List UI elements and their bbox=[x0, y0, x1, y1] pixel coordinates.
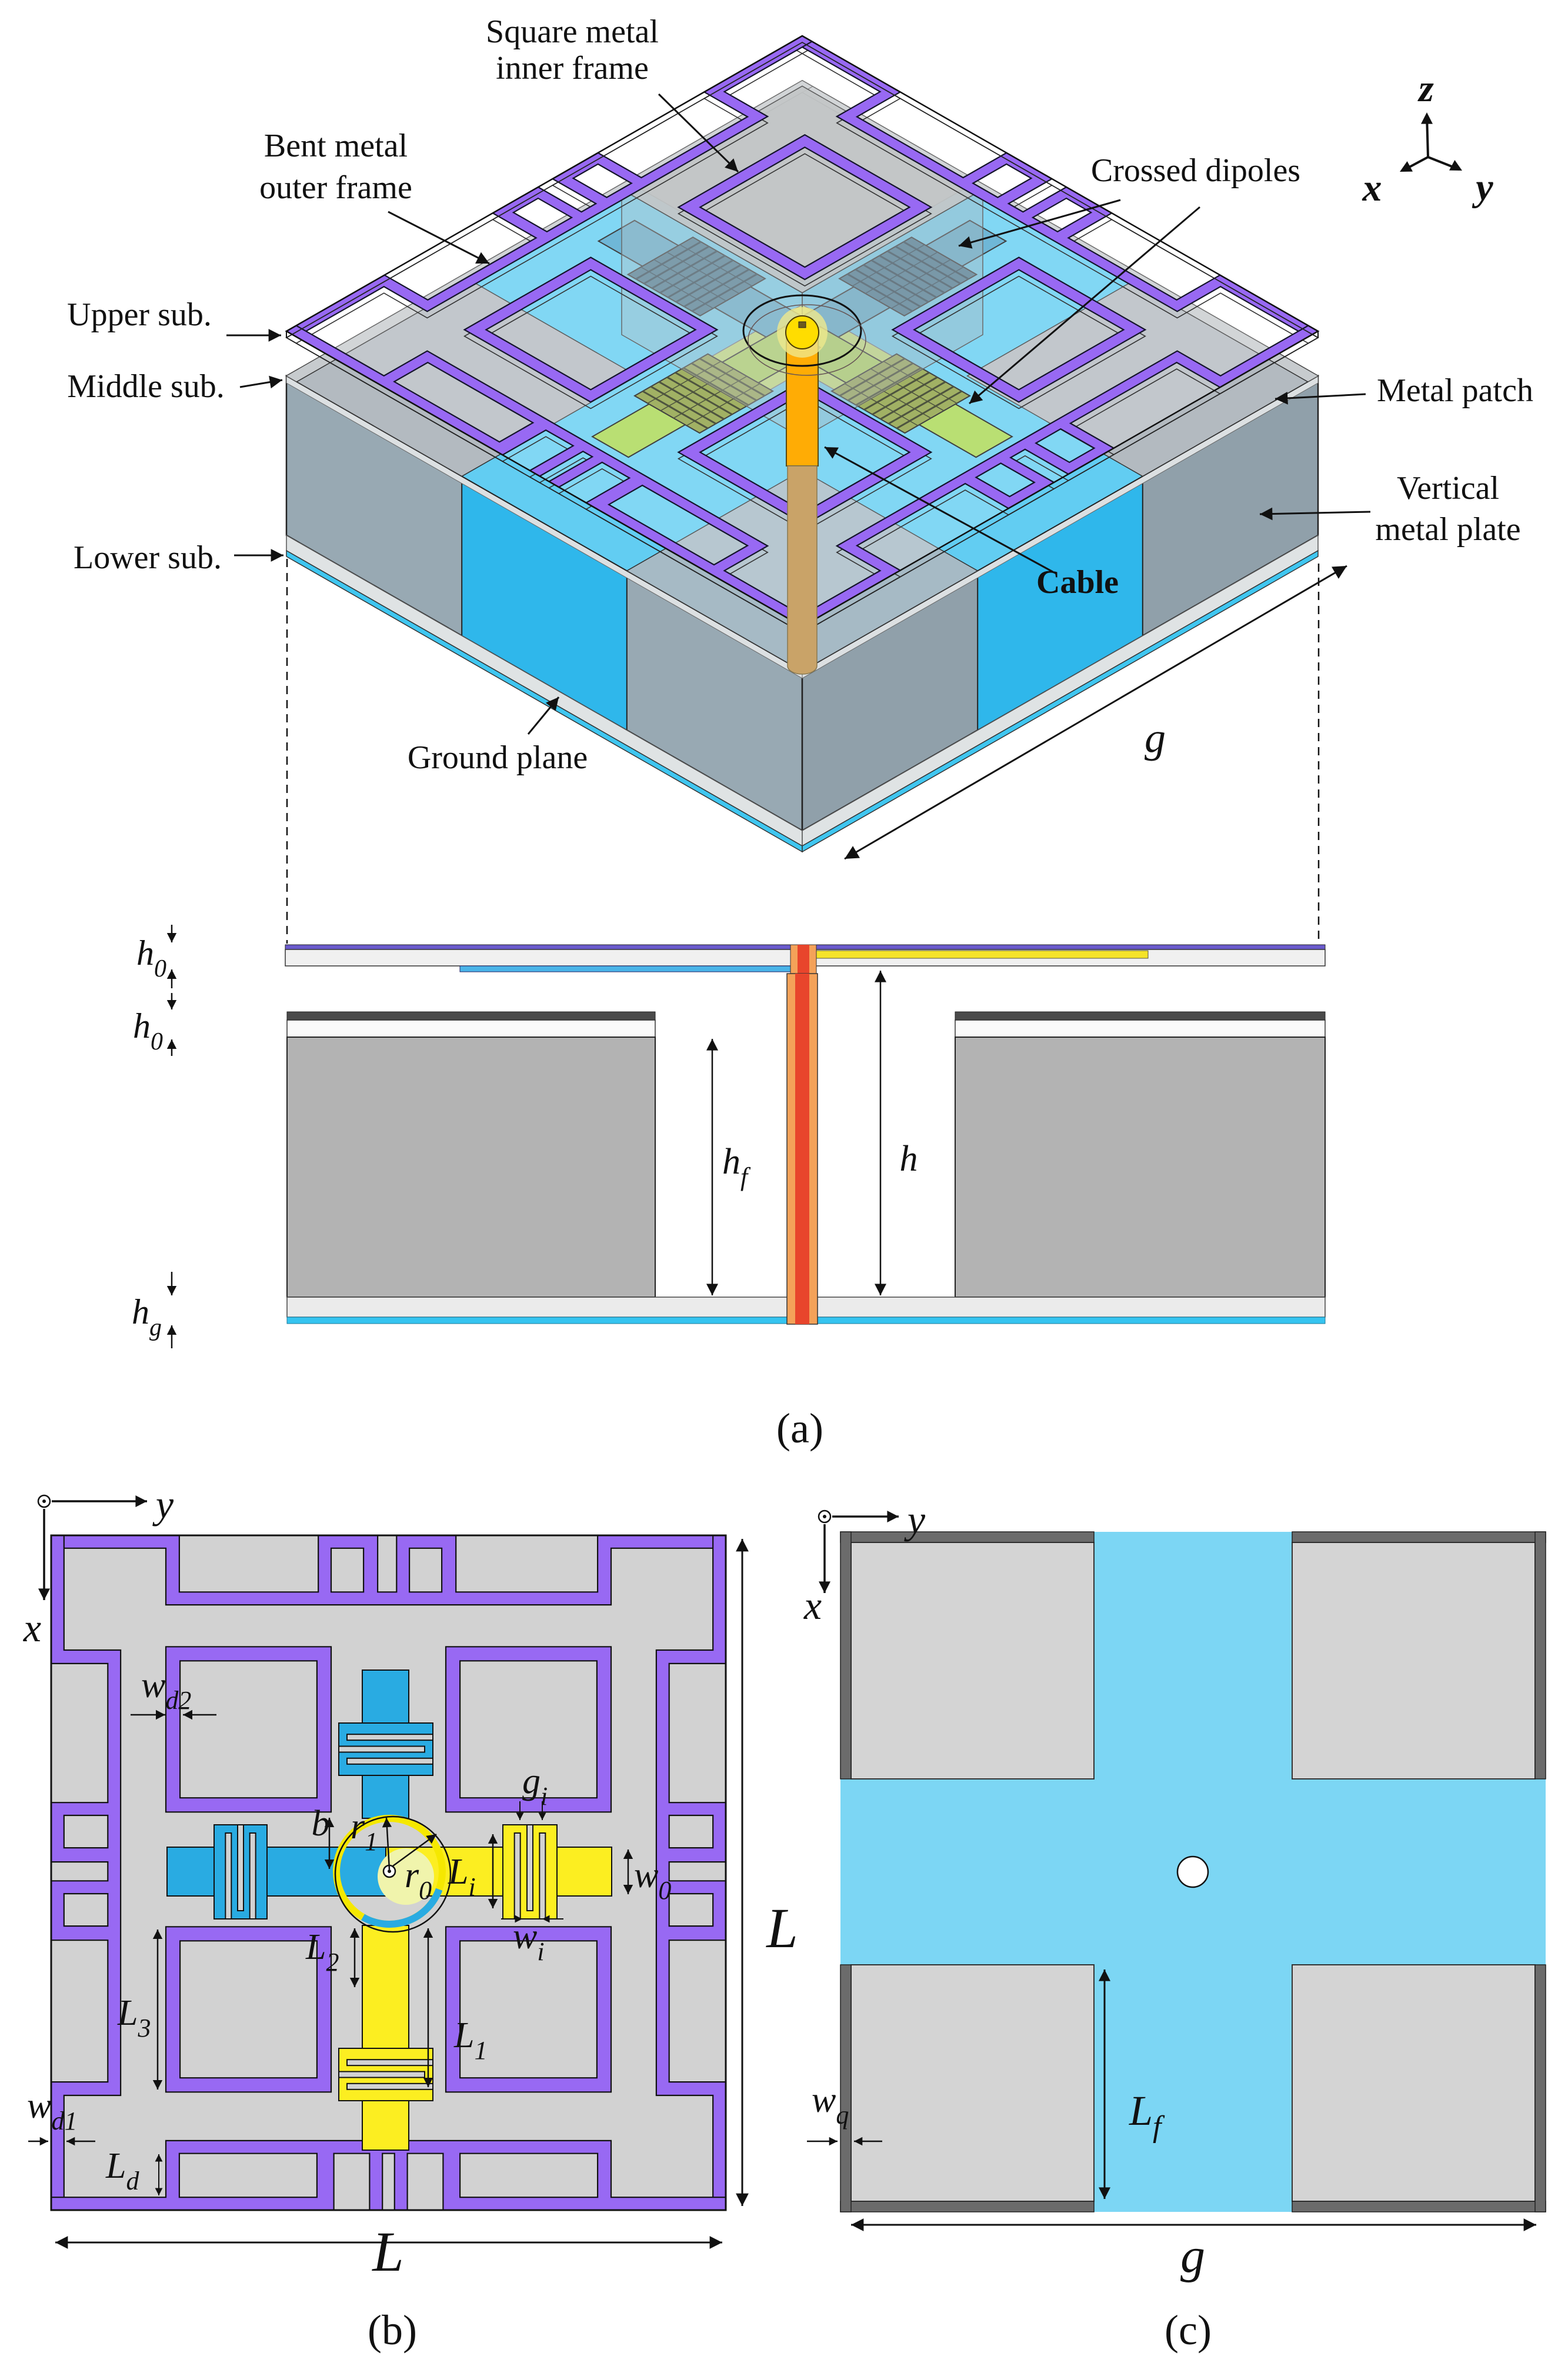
svg-text:x: x bbox=[803, 1583, 822, 1628]
svg-text:g: g bbox=[1180, 2228, 1205, 2283]
svg-text:metal plate: metal plate bbox=[1375, 511, 1520, 548]
svg-text:x: x bbox=[1362, 166, 1382, 209]
svg-text:L: L bbox=[765, 1897, 798, 1960]
svg-text:Metal patch: Metal patch bbox=[1377, 372, 1533, 409]
svg-text:h: h bbox=[900, 1139, 918, 1179]
svg-text:x: x bbox=[23, 1605, 41, 1650]
svg-text:Lower sub.: Lower sub. bbox=[74, 539, 222, 576]
svg-text:Ground plane: Ground plane bbox=[408, 739, 588, 776]
svg-text:(c): (c) bbox=[1165, 2307, 1212, 2354]
svg-text:(b): (b) bbox=[368, 2307, 417, 2354]
svg-text:(a): (a) bbox=[776, 1405, 823, 1452]
svg-text:y: y bbox=[152, 1482, 174, 1527]
svg-text:Middle sub.: Middle sub. bbox=[67, 368, 225, 405]
svg-text:g: g bbox=[1145, 714, 1166, 761]
svg-text:L: L bbox=[371, 2220, 403, 2283]
svg-text:Crossed dipoles: Crossed dipoles bbox=[1091, 152, 1300, 189]
svg-text:outer frame: outer frame bbox=[259, 169, 412, 206]
svg-text:Bent metal: Bent metal bbox=[264, 128, 408, 164]
svg-text:Upper sub.: Upper sub. bbox=[67, 296, 212, 333]
svg-text:Square metal: Square metal bbox=[486, 14, 659, 50]
svg-text:inner frame: inner frame bbox=[496, 50, 649, 86]
svg-text:y: y bbox=[904, 1497, 926, 1542]
svg-text:z: z bbox=[1417, 67, 1434, 110]
svg-text:Vertical: Vertical bbox=[1397, 470, 1499, 506]
